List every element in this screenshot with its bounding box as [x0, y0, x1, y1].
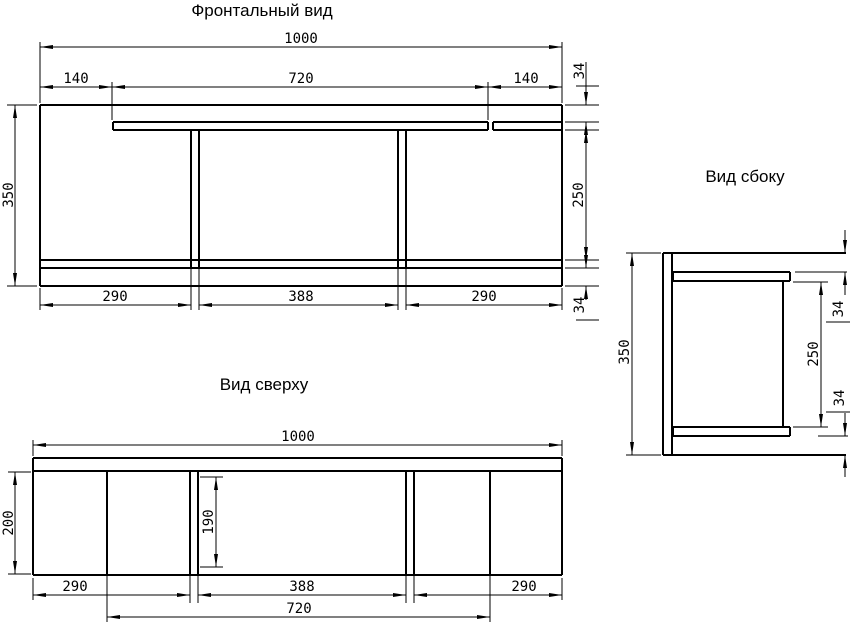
dim-label-side-clear-height: 250: [806, 341, 822, 366]
dim-label-front-bottom-inset: 34: [572, 297, 588, 314]
dim-label-front-right-offset: 140: [513, 71, 538, 87]
side-view-title: Вид сбоку: [705, 167, 785, 186]
dim-label-side-height: 350: [617, 339, 633, 364]
dim-label-front-right-bay: 290: [471, 289, 496, 305]
dim-label-top-tabletop-length: 720: [286, 601, 311, 617]
dim-label-top-center-bay: 388: [289, 579, 314, 595]
dim-label-top-total-width: 1000: [281, 429, 315, 445]
dim-label-front-tabletop-length: 720: [288, 71, 313, 87]
dim-label-front-height: 350: [1, 182, 17, 207]
dim-label-top-depth: 200: [1, 510, 17, 535]
dim-label-top-right-bay: 290: [511, 579, 536, 595]
dim-label-front-total-width: 1000: [284, 31, 318, 47]
dim-label-top-left-bay: 290: [62, 579, 87, 595]
front-view: Фронтальный вид 1000 140 720 140 350 34: [1, 1, 599, 320]
top-view-outline: [33, 458, 562, 575]
dim-label-top-leg-depth: 190: [201, 509, 217, 534]
top-view: Вид сверху 1000 200 190 290 388 290 720: [1, 375, 562, 622]
front-view-outline: [40, 105, 562, 286]
dim-label-side-top-inset: 34: [831, 301, 847, 318]
dim-label-front-top-inset: 34: [572, 63, 588, 80]
top-view-title: Вид сверху: [220, 375, 309, 394]
side-view: Вид сбоку 350 34 250 34: [617, 167, 850, 477]
dim-label-side-bottom-inset: 34: [832, 390, 848, 407]
dim-label-front-left-offset: 140: [63, 71, 88, 87]
dim-label-front-center-bay: 388: [288, 289, 313, 305]
dim-label-front-left-bay: 290: [102, 289, 127, 305]
dim-label-front-clear-height: 250: [571, 182, 587, 207]
front-view-title: Фронтальный вид: [191, 1, 332, 20]
blueprint-page: Фронтальный вид 1000 140 720 140 350 34: [0, 0, 850, 626]
technical-drawing: Фронтальный вид 1000 140 720 140 350 34: [0, 0, 850, 626]
